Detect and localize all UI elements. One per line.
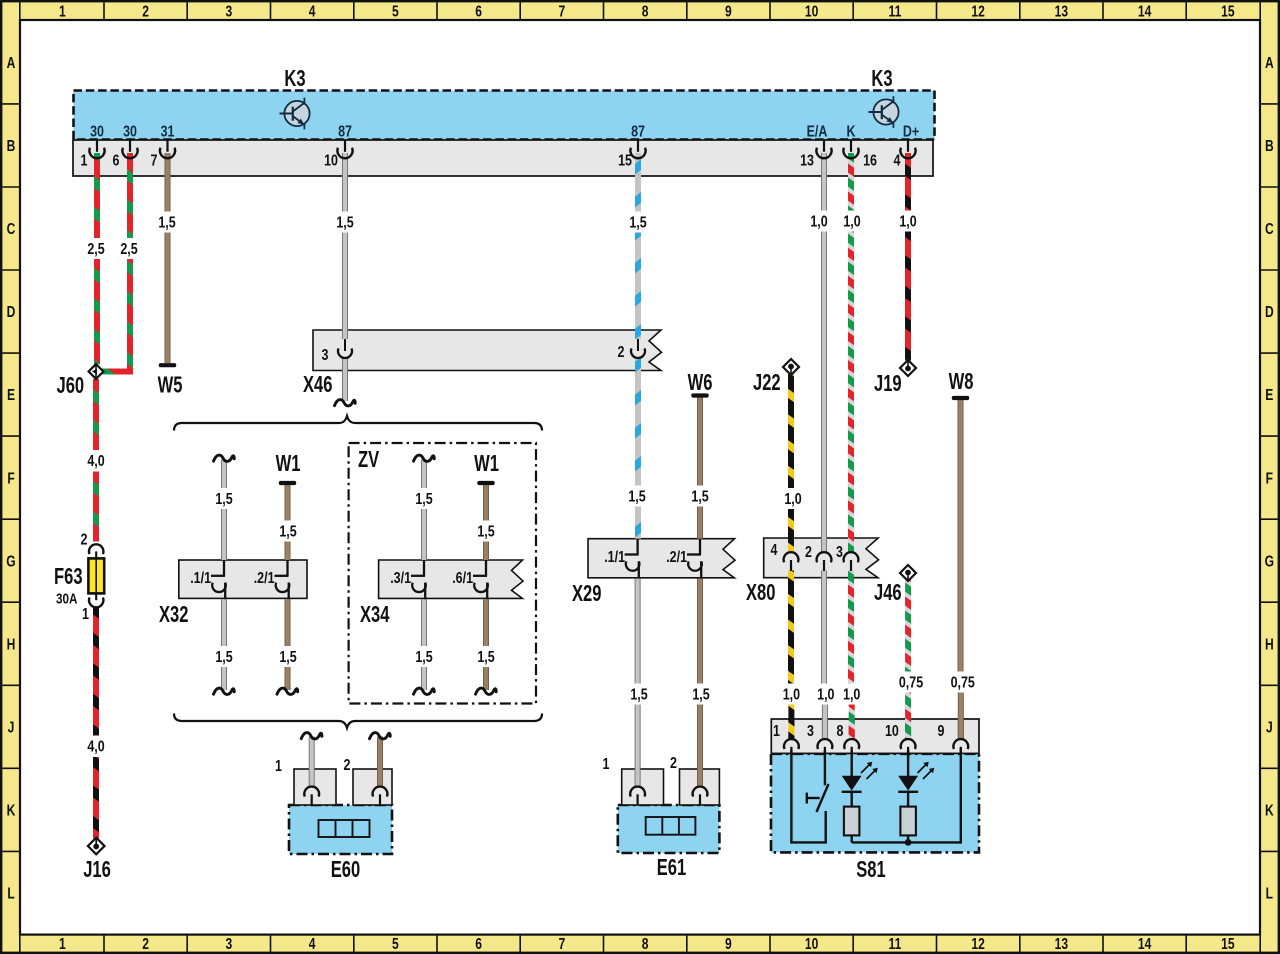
svg-text:1,5: 1,5 (279, 649, 296, 667)
svg-text:10: 10 (885, 723, 899, 741)
svg-text:E/A: E/A (807, 123, 828, 141)
svg-text:2: 2 (81, 531, 88, 549)
svg-text:2: 2 (344, 757, 351, 775)
svg-text:3: 3 (226, 2, 233, 20)
svg-text:1: 1 (275, 758, 282, 776)
svg-text:.6/1: .6/1 (452, 570, 473, 588)
svg-text:10: 10 (324, 152, 338, 170)
svg-text:ZV: ZV (358, 447, 380, 472)
svg-text:B: B (1265, 137, 1274, 155)
svg-text:X46: X46 (303, 372, 332, 397)
svg-text:1,0: 1,0 (899, 213, 916, 231)
svg-text:2,5: 2,5 (87, 241, 104, 259)
svg-text:1,0: 1,0 (784, 491, 801, 509)
svg-text:6: 6 (475, 2, 482, 20)
svg-text:1: 1 (773, 723, 780, 741)
svg-text:A: A (1265, 54, 1274, 72)
svg-text:J46: J46 (874, 580, 902, 605)
svg-text:13: 13 (800, 152, 814, 170)
svg-text:0,75: 0,75 (899, 674, 923, 692)
svg-text:12: 12 (971, 934, 985, 952)
svg-text:1,5: 1,5 (477, 523, 494, 541)
svg-text:1: 1 (603, 756, 610, 774)
svg-text:8: 8 (642, 2, 649, 20)
svg-text:11: 11 (889, 2, 902, 20)
svg-text:7: 7 (559, 2, 566, 20)
svg-text:1,5: 1,5 (336, 214, 353, 232)
svg-text:7: 7 (559, 934, 566, 952)
svg-text:K3: K3 (871, 66, 892, 91)
svg-text:87: 87 (631, 123, 645, 141)
svg-text:J60: J60 (57, 373, 85, 398)
svg-text:1: 1 (81, 152, 88, 170)
svg-text:1,5: 1,5 (629, 214, 646, 232)
svg-text:X32: X32 (159, 602, 188, 627)
svg-text:1: 1 (59, 934, 66, 952)
svg-text:30: 30 (90, 123, 104, 141)
svg-text:E60: E60 (331, 857, 360, 882)
svg-text:X29: X29 (572, 581, 601, 606)
svg-text:H: H (1265, 635, 1274, 653)
svg-text:L: L (1266, 884, 1274, 902)
svg-text:4: 4 (309, 2, 316, 20)
svg-text:K: K (7, 801, 16, 819)
svg-text:K: K (1265, 801, 1274, 819)
svg-text:.1/1: .1/1 (190, 570, 211, 588)
svg-text:J: J (8, 718, 15, 736)
svg-text:S81: S81 (856, 857, 885, 882)
svg-text:W6: W6 (688, 370, 713, 395)
svg-text:1,0: 1,0 (843, 686, 860, 704)
svg-text:1: 1 (82, 606, 89, 624)
svg-text:C: C (1265, 220, 1274, 238)
svg-text:13: 13 (1055, 934, 1069, 952)
svg-text:3: 3 (226, 934, 233, 952)
svg-text:2: 2 (670, 755, 677, 773)
svg-text:87: 87 (338, 123, 352, 141)
svg-text:7: 7 (151, 152, 158, 170)
svg-text:.1/1: .1/1 (604, 549, 625, 567)
svg-text:2,5: 2,5 (120, 241, 137, 259)
svg-text:4: 4 (771, 542, 778, 560)
svg-text:.2/1: .2/1 (254, 570, 275, 588)
svg-text:W8: W8 (949, 369, 974, 394)
svg-text:B: B (7, 137, 16, 155)
svg-text:2: 2 (618, 344, 625, 362)
svg-text:1,0: 1,0 (783, 686, 800, 704)
svg-text:11: 11 (889, 934, 902, 952)
svg-text:J19: J19 (874, 371, 902, 396)
svg-text:1,5: 1,5 (628, 488, 645, 506)
svg-text:1,5: 1,5 (215, 649, 232, 667)
svg-text:X34: X34 (360, 602, 390, 627)
svg-text:6: 6 (475, 934, 482, 952)
svg-text:15: 15 (1221, 934, 1235, 952)
svg-text:1,5: 1,5 (630, 686, 647, 704)
svg-text:1,0: 1,0 (843, 213, 860, 231)
svg-text:30: 30 (123, 123, 137, 141)
svg-text:5: 5 (392, 934, 399, 952)
svg-text:C: C (7, 220, 16, 238)
svg-text:L: L (7, 884, 15, 902)
svg-text:F: F (7, 469, 14, 487)
svg-text:1,5: 1,5 (692, 686, 709, 704)
svg-text:1,5: 1,5 (415, 491, 432, 509)
svg-text:.3/1: .3/1 (390, 570, 411, 588)
svg-text:W5: W5 (158, 373, 183, 398)
svg-text:0,75: 0,75 (951, 674, 975, 692)
svg-text:G: G (1265, 552, 1274, 570)
svg-text:W1: W1 (474, 451, 499, 476)
svg-text:F63: F63 (54, 564, 83, 589)
svg-text:A: A (7, 54, 16, 72)
svg-text:15: 15 (1221, 2, 1235, 20)
svg-text:9: 9 (938, 723, 945, 741)
svg-text:9: 9 (725, 2, 732, 20)
svg-text:E61: E61 (657, 855, 686, 880)
svg-text:K: K (846, 123, 856, 141)
svg-text:16: 16 (863, 152, 877, 170)
svg-text:2: 2 (805, 544, 812, 562)
svg-text:1,0: 1,0 (810, 213, 827, 231)
svg-text:K3: K3 (284, 66, 305, 91)
svg-text:1,5: 1,5 (477, 649, 494, 667)
svg-text:.2/1: .2/1 (666, 549, 687, 567)
svg-text:J16: J16 (83, 857, 111, 882)
svg-text:1,5: 1,5 (215, 491, 232, 509)
svg-text:31: 31 (161, 123, 175, 141)
svg-text:1,5: 1,5 (158, 214, 175, 232)
svg-text:13: 13 (1055, 2, 1069, 20)
svg-text:D+: D+ (903, 123, 919, 141)
svg-text:1: 1 (59, 2, 66, 20)
svg-text:3: 3 (807, 723, 814, 741)
svg-text:4: 4 (309, 934, 316, 952)
svg-text:3: 3 (322, 347, 329, 365)
svg-text:15: 15 (618, 152, 632, 170)
svg-text:G: G (6, 552, 15, 570)
svg-text:1,0: 1,0 (817, 686, 834, 704)
svg-text:F: F (1266, 469, 1273, 487)
svg-text:9: 9 (725, 934, 732, 952)
svg-text:D: D (7, 303, 16, 321)
svg-text:4,0: 4,0 (87, 738, 104, 756)
svg-text:J22: J22 (753, 370, 781, 395)
svg-text:10: 10 (805, 934, 819, 952)
svg-text:6: 6 (113, 152, 120, 170)
svg-text:J: J (1266, 718, 1273, 736)
svg-text:1,5: 1,5 (415, 649, 432, 667)
svg-text:D: D (1265, 303, 1274, 321)
svg-text:X80: X80 (746, 580, 775, 605)
svg-text:W1: W1 (276, 451, 301, 476)
svg-text:12: 12 (971, 2, 985, 20)
svg-text:2: 2 (142, 934, 149, 952)
svg-text:E: E (1265, 386, 1273, 404)
svg-text:10: 10 (805, 2, 819, 20)
svg-text:E: E (7, 386, 15, 404)
svg-text:5: 5 (392, 2, 399, 20)
svg-text:4: 4 (894, 152, 901, 170)
svg-text:1,5: 1,5 (691, 488, 708, 506)
svg-text:2: 2 (142, 2, 149, 20)
svg-text:H: H (7, 635, 16, 653)
svg-text:3: 3 (836, 544, 843, 562)
svg-text:8: 8 (837, 723, 844, 741)
svg-text:8: 8 (642, 934, 649, 952)
svg-text:14: 14 (1138, 934, 1152, 952)
svg-text:1,5: 1,5 (279, 523, 296, 541)
svg-text:30A: 30A (56, 590, 78, 607)
svg-text:4,0: 4,0 (87, 453, 104, 471)
svg-text:14: 14 (1138, 2, 1152, 20)
